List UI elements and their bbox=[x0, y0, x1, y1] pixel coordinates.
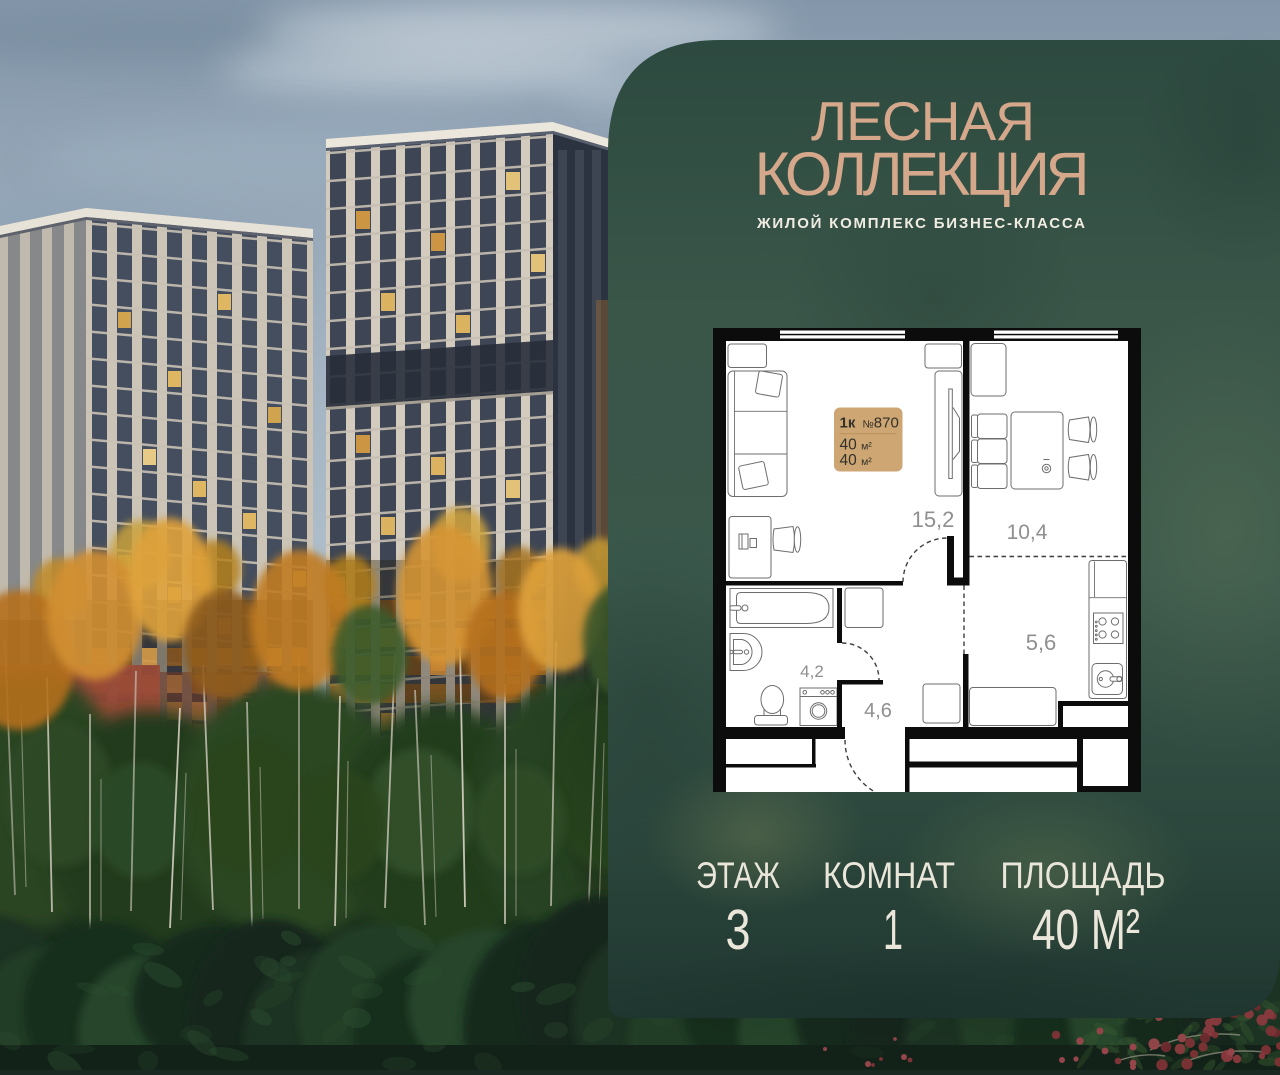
svg-text:КОЛЛЕКЦИЯ: КОЛЛЕКЦИЯ bbox=[755, 140, 1090, 208]
svg-text:4,2: 4,2 bbox=[800, 662, 824, 681]
svg-text:10,4: 10,4 bbox=[1007, 521, 1048, 544]
svg-text:1: 1 bbox=[883, 898, 903, 962]
svg-text:1к: 1к bbox=[840, 415, 856, 432]
svg-text:40 М²: 40 М² bbox=[1032, 898, 1140, 962]
svg-text:3: 3 bbox=[726, 898, 751, 962]
svg-text:15,2: 15,2 bbox=[912, 507, 955, 532]
svg-text:ПЛОЩАДЬ: ПЛОЩАДЬ bbox=[1001, 855, 1166, 896]
svg-text:ЭТАЖ: ЭТАЖ bbox=[696, 855, 780, 896]
svg-text:5,6: 5,6 bbox=[1026, 630, 1057, 655]
svg-text:КОМНАТ: КОМНАТ bbox=[823, 855, 955, 896]
svg-text:4,6: 4,6 bbox=[864, 700, 892, 722]
